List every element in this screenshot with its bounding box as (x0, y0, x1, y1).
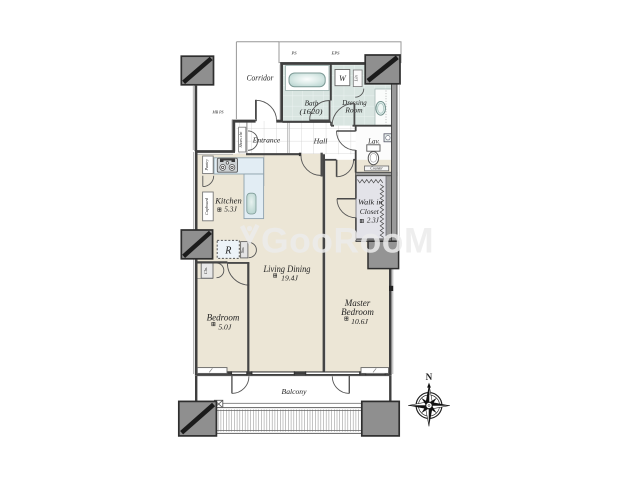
svg-text:Sto.: Sto. (240, 247, 245, 254)
svg-text:Lin: Lin (354, 75, 359, 83)
svg-text:Bedroom: Bedroom (341, 307, 374, 317)
svg-text:Bedroom: Bedroom (207, 312, 240, 322)
svg-text:10.6J: 10.6J (351, 317, 368, 326)
svg-text:Entrance: Entrance (252, 135, 281, 144)
svg-text:Counter: Counter (370, 167, 383, 171)
svg-text:Room: Room (344, 106, 362, 114)
svg-text:Balcony: Balcony (282, 387, 307, 396)
svg-text:5.0J: 5.0J (218, 322, 231, 331)
svg-text:PS: PS (290, 51, 297, 56)
svg-text:Corridor: Corridor (247, 74, 275, 83)
svg-text:Lav.: Lav. (367, 138, 380, 146)
svg-text:Closet: Closet (360, 208, 380, 216)
svg-text:Walk in: Walk in (358, 199, 383, 207)
svg-text:GooRooM: GooRooM (261, 221, 434, 261)
svg-text:Clo.: Clo. (203, 267, 208, 274)
svg-text:Cupboard: Cupboard (204, 197, 209, 215)
svg-text:EPS: EPS (331, 51, 341, 56)
svg-text:Shoes clst: Shoes clst (238, 131, 243, 148)
svg-text:R: R (224, 245, 231, 256)
svg-text:19.4J: 19.4J (281, 273, 298, 282)
svg-text:5.3J: 5.3J (224, 204, 237, 213)
svg-text:MB PS: MB PS (212, 111, 224, 115)
svg-text:Hall: Hall (313, 137, 328, 146)
svg-text:Pantry: Pantry (204, 159, 209, 172)
svg-text:N: N (426, 372, 433, 382)
